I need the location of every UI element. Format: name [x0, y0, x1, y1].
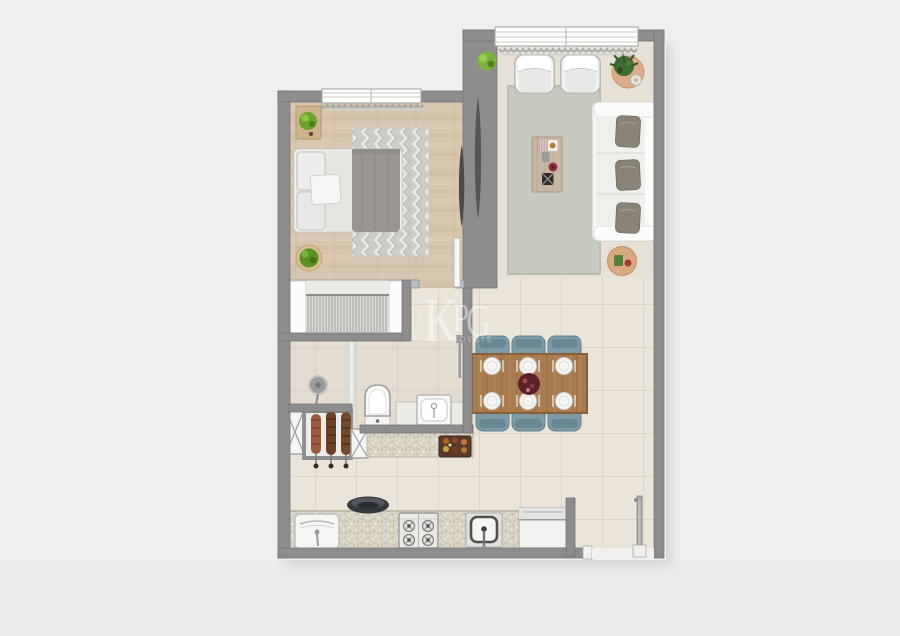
- svg-text:IMÓVEIS: IMÓVEIS: [447, 334, 493, 344]
